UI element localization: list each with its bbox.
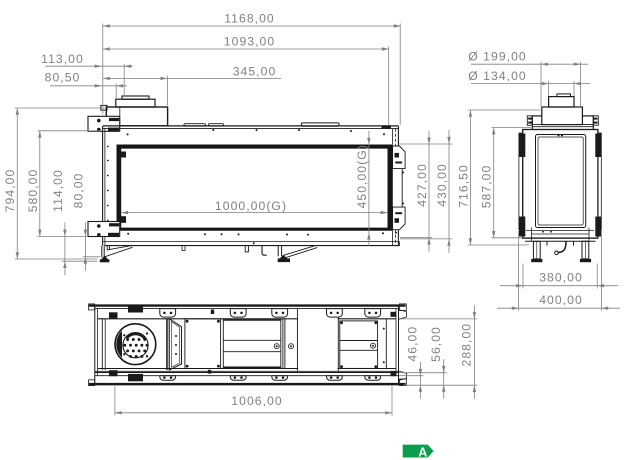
svg-text:450,00(G): 450,00(G)	[355, 144, 369, 208]
svg-text:46,00: 46,00	[406, 326, 420, 362]
svg-text:80,00: 80,00	[71, 173, 85, 209]
svg-text:716,50: 716,50	[456, 164, 470, 208]
svg-text:794,00: 794,00	[3, 169, 17, 213]
svg-text:1168,00: 1168,00	[224, 11, 275, 25]
svg-text:A: A	[418, 445, 427, 459]
svg-text:Ø 134,00: Ø 134,00	[468, 69, 527, 83]
svg-text:1000,00(G): 1000,00(G)	[215, 199, 287, 213]
svg-text:56,00: 56,00	[429, 326, 443, 362]
svg-text:427,00: 427,00	[415, 163, 429, 207]
svg-text:288,00: 288,00	[459, 323, 473, 367]
svg-text:1093,00: 1093,00	[224, 34, 275, 48]
svg-text:587,00: 587,00	[480, 165, 494, 209]
svg-text:1006,00: 1006,00	[231, 394, 282, 408]
svg-text:400,00: 400,00	[539, 293, 583, 307]
svg-text:80,50: 80,50	[45, 70, 81, 84]
svg-text:113,00: 113,00	[41, 52, 84, 66]
svg-text:Ø 199,00: Ø 199,00	[468, 49, 527, 63]
svg-text:345,00: 345,00	[233, 64, 277, 78]
svg-text:430,00: 430,00	[435, 163, 449, 207]
svg-text:580,00: 580,00	[26, 169, 40, 213]
svg-text:380,00: 380,00	[539, 271, 583, 285]
svg-text:114,00: 114,00	[51, 169, 65, 212]
